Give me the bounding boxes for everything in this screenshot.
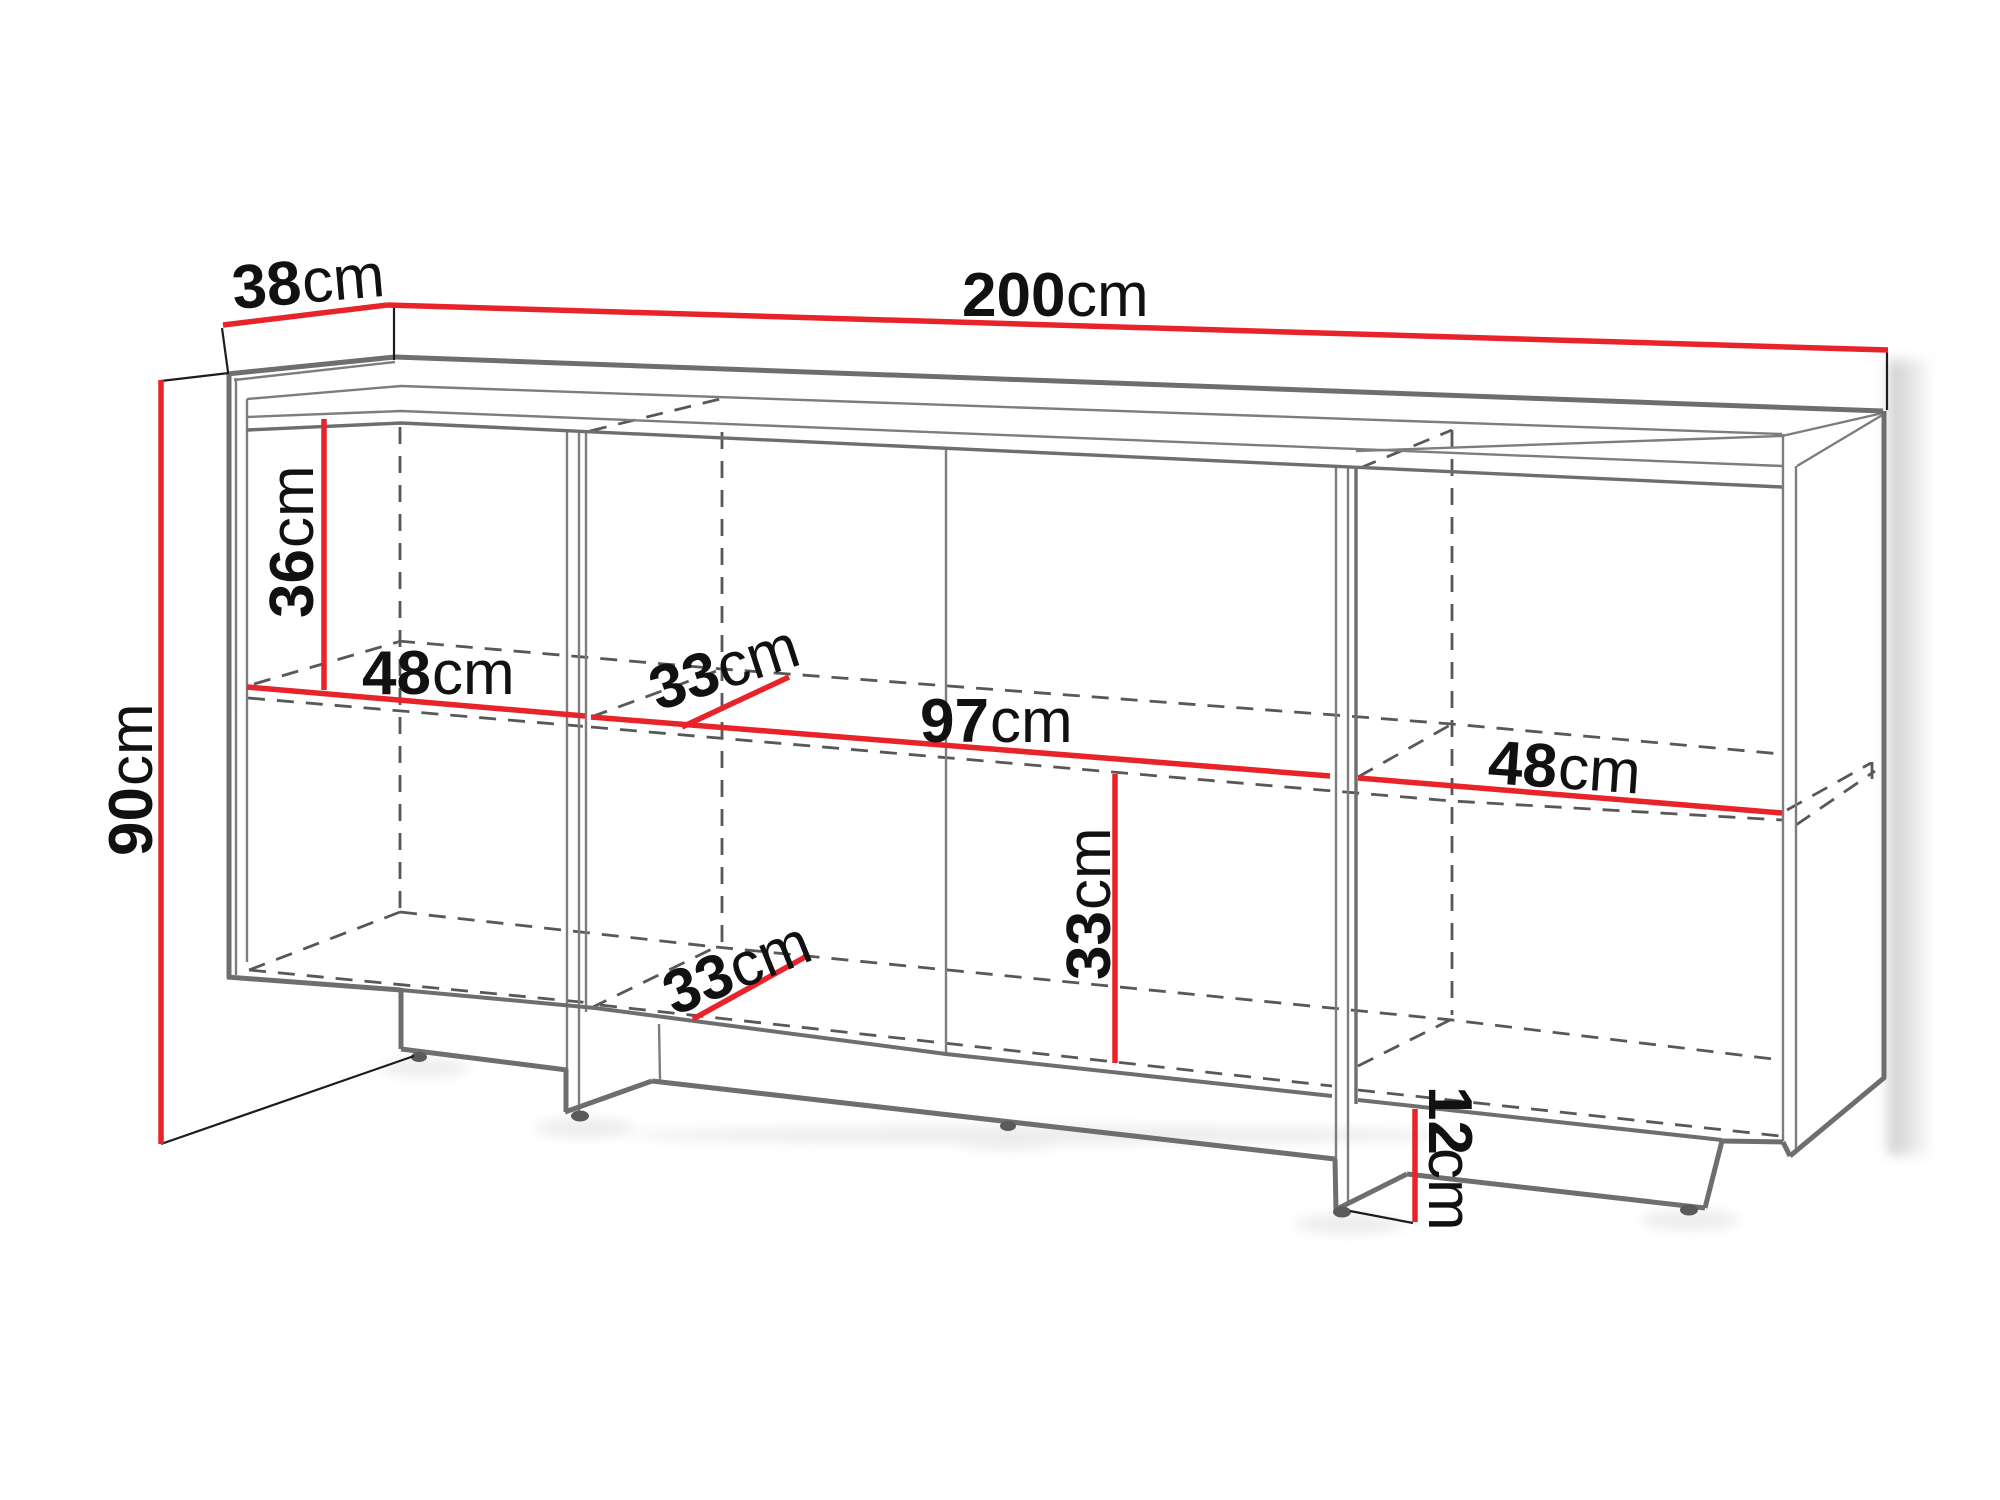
svg-text:200: 200 (962, 261, 1065, 330)
svg-text:12: 12 (1415, 1086, 1484, 1155)
svg-text:cm: cm (432, 639, 515, 708)
svg-text:cm: cm (990, 687, 1073, 756)
svg-text:cm: cm (1556, 733, 1643, 808)
svg-text:cm: cm (1066, 261, 1149, 330)
svg-text:90: 90 (97, 787, 166, 856)
svg-text:cm: cm (258, 465, 327, 548)
svg-text:cm: cm (1415, 1148, 1484, 1231)
svg-text:36: 36 (258, 549, 327, 618)
svg-text:33: 33 (1055, 911, 1124, 980)
svg-text:48: 48 (1486, 728, 1560, 802)
svg-text:97: 97 (920, 687, 989, 756)
svg-text:48: 48 (362, 639, 431, 708)
svg-text:38: 38 (229, 248, 304, 323)
svg-text:cm: cm (299, 241, 387, 317)
svg-text:cm: cm (1055, 827, 1124, 910)
svg-text:cm: cm (97, 703, 166, 786)
